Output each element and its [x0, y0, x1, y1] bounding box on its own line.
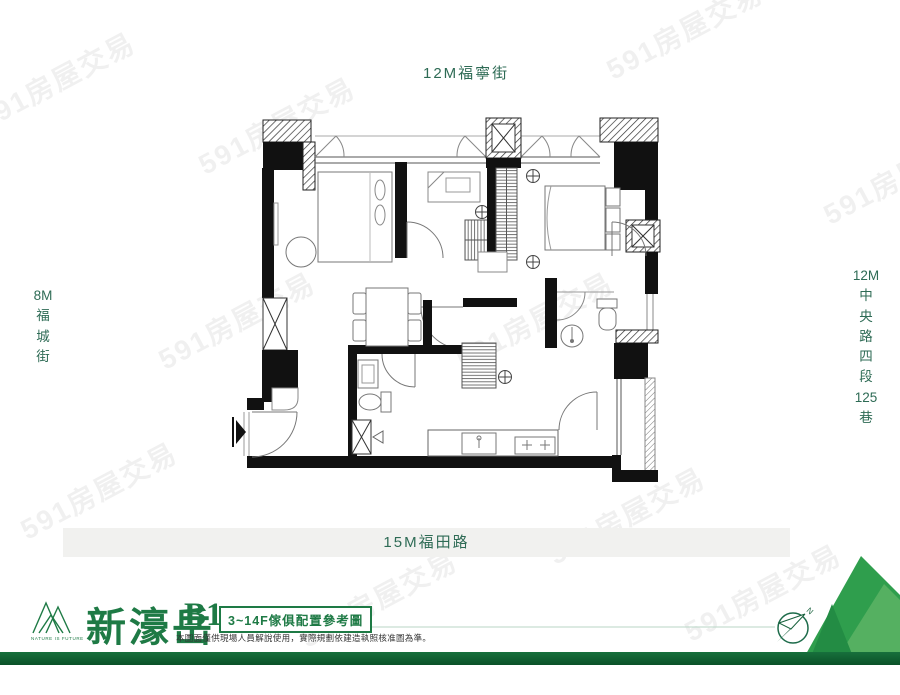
mountains-decoration: [806, 556, 900, 654]
round-table: [286, 237, 316, 267]
entry-door-arc: [252, 412, 297, 457]
bedroom1: [286, 172, 392, 267]
dining-set: [353, 288, 421, 346]
footer-green-bar: [0, 652, 900, 665]
plan-note-box: 3~14F傢俱配置參考圖: [219, 606, 372, 633]
kitchen: [428, 430, 558, 456]
brand-logo-icon: [33, 603, 70, 633]
floorplan-page: 591房屋交易 591房屋交易 591房屋交易 591房屋交易 591房屋交易 …: [0, 0, 900, 695]
corridor: [421, 298, 597, 430]
toilet: [599, 308, 616, 330]
floorplan-drawing: N: [0, 0, 900, 695]
street-label-top: 12M福寧街: [423, 62, 509, 83]
bathroom1: [348, 345, 432, 456]
bathroom2: [545, 278, 617, 348]
disclaimer-text: 本圖面僅供現場人員解說使用，實際規劃依建造執照核准圖為準。: [176, 632, 431, 644]
toilet: [359, 394, 381, 410]
street-label-left: 8M福城街: [26, 286, 60, 367]
bedroom2: [395, 162, 489, 260]
brand-logo-caption: NATURE IS FUTURE: [31, 636, 84, 641]
street-label-right: 12M中央路四段125巷: [846, 266, 886, 428]
compass-icon: N: [777, 606, 815, 643]
unit-label: B1: [184, 597, 223, 634]
compass-north-label: N: [805, 606, 815, 617]
wardrobe-wall: [487, 160, 517, 260]
window-swing-arcs: [315, 136, 600, 157]
dining-table: [366, 288, 408, 346]
